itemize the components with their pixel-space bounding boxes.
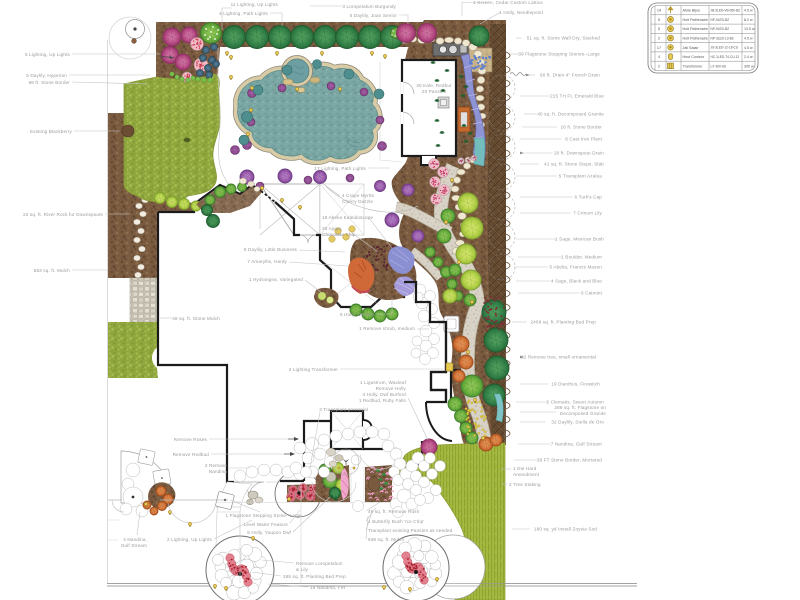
- svg-text:5 Lighting, Up Lights: 5 Lighting, Up Lights: [25, 52, 71, 57]
- svg-text:4.5 w: 4.5 w: [744, 9, 753, 13]
- svg-text:300 w: 300 w: [744, 64, 754, 68]
- svg-text:Remove Holly: Remove Holly: [376, 386, 407, 391]
- svg-text:8 Daylily, Little Business: 8 Daylily, Little Business: [244, 247, 298, 252]
- svg-text:Cherry Dazzle: Cherry Dazzle: [342, 199, 373, 204]
- svg-text:2469 sq. ft. Planting Bed Prep: 2469 sq. ft. Planting Bed Prep: [530, 320, 596, 325]
- svg-text:7 Amaryllis, Hardy: 7 Amaryllis, Hardy: [247, 259, 287, 264]
- svg-text:4 Holly, Dwf Burford: 4 Holly, Dwf Burford: [362, 392, 406, 397]
- svg-text:49 sq. ft. Remove Rush: 49 sq. ft. Remove Rush: [368, 509, 420, 514]
- svg-text:NP-9LED-BZ: NP-9LED-BZ: [711, 18, 730, 22]
- svg-text:4 Crape Myrtle: 4 Crape Myrtle: [342, 193, 375, 198]
- svg-text:4: 4: [658, 55, 660, 59]
- svg-text:1 Die Hard: 1 Die Hard: [513, 466, 537, 471]
- svg-text:16 ft. Stone Border: 16 ft. Stone Border: [561, 125, 603, 130]
- svg-text:1 Boulder, Medium: 1 Boulder, Medium: [561, 255, 602, 260]
- svg-text:LX-300-SS: LX-300-SS: [711, 64, 727, 68]
- svg-text:20 ft. Downspout Drain: 20 ft. Downspout Drain: [554, 151, 604, 156]
- svg-text:51 sq. ft. Stone Wall Dry, Sta: 51 sq. ft. Stone Wall Dry, Stacked: [527, 36, 601, 41]
- svg-text:19 Dianthus, Firewitch: 19 Dianthus, Firewitch: [551, 382, 600, 387]
- svg-text:17: 17: [657, 46, 661, 50]
- svg-text:5 Holly, Yaupon Dwf: 5 Holly, Yaupon Dwf: [247, 530, 291, 535]
- svg-text:5 Transplant Azalea: 5 Transplant Azalea: [559, 174, 602, 179]
- svg-text:7 Nandina, Gulf Stream: 7 Nandina, Gulf Stream: [551, 442, 602, 447]
- svg-text:1 Flagstone Stepping Stone--La: 1 Flagstone Stepping Stone--Large: [226, 513, 303, 518]
- svg-text:2: 2: [658, 64, 660, 68]
- svg-text:1 Ligustrum, Waxleaf: 1 Ligustrum, Waxleaf: [360, 380, 407, 385]
- svg-text:Hout Couleur: Hout Couleur: [683, 55, 705, 59]
- svg-text:JB-3LED-VB-050-BZ: JB-3LED-VB-050-BZ: [711, 9, 741, 13]
- svg-text:Amendment: Amendment: [513, 472, 540, 477]
- svg-text:& Lily: & Lily: [296, 567, 309, 572]
- svg-text:289 sq. ft. Flagstone on: 289 sq. ft. Flagstone on: [554, 405, 606, 410]
- svg-text:1 Sage, Mexican Bush: 1 Sage, Mexican Bush: [555, 237, 604, 242]
- svg-text:14: 14: [657, 9, 661, 13]
- svg-text:Transplant existing Pansies as: Transplant existing Pansies as needed: [368, 528, 453, 533]
- svg-text:22 sq. ft. River Rock for Down: 22 sq. ft. River Rock for Downspouts: [23, 212, 104, 217]
- svg-text:Atole Bijou: Atole Bijou: [683, 9, 701, 13]
- svg-text:8 Cast Iron Plant: 8 Cast Iron Plant: [565, 137, 602, 142]
- svg-text:39 Flagstone Stepping Stones--: 39 Flagstone Stepping Stones--Large: [518, 52, 600, 57]
- svg-text:17 Lighting, Path Lights: 17 Lighting, Path Lights: [314, 166, 366, 171]
- svg-text:32 Daylily, Stella de Oro: 32 Daylily, Stella de Oro: [551, 420, 604, 425]
- svg-text:40 sq. ft. Decomposed Granite: 40 sq. ft. Decomposed Granite: [537, 112, 604, 117]
- svg-text:Existing Blackberry: Existing Blackberry: [30, 129, 72, 134]
- svg-text:NP-9LED-BZ: NP-9LED-BZ: [711, 27, 730, 31]
- svg-text:4 Nandina,: 4 Nandina,: [123, 537, 147, 542]
- svg-text:3 Transplant perennial: 3 Transplant perennial: [319, 407, 368, 412]
- svg-text:8.2 w: 8.2 w: [744, 18, 753, 22]
- svg-text:6 Holly, Carissa: 6 Holly, Carissa: [340, 312, 375, 317]
- svg-text:Holt Pathenaire: Holt Pathenaire: [683, 27, 708, 31]
- svg-text:Holt Pathenaire: Holt Pathenaire: [683, 37, 708, 41]
- svg-text:Remove Redbud: Remove Redbud: [173, 452, 210, 457]
- svg-text:38 FT Stone Border, Mortared: 38 FT Stone Border, Mortared: [537, 458, 602, 463]
- svg-text:4.5 w: 4.5 w: [744, 37, 753, 41]
- svg-text:4 Lighting, Path Lights: 4 Lighting, Path Lights: [219, 11, 268, 16]
- svg-text:938 sq. ft. Mulch: 938 sq. ft. Mulch: [368, 537, 405, 542]
- svg-text:NP-3LED-L3-BZ: NP-3LED-L3-BZ: [711, 36, 734, 40]
- svg-text:5 Daylily, Hyperion: 5 Daylily, Hyperion: [26, 73, 67, 78]
- svg-text:HC-1LED-T4-CU-12: HC-1LED-T4-CU-12: [711, 55, 740, 59]
- svg-text:180 sq. yd Install Zoysia Sod: 180 sq. yd Install Zoysia Sod: [534, 527, 597, 532]
- svg-text:2 Remove: 2 Remove: [205, 463, 227, 468]
- svg-text:6 Catmint: 6 Catmint: [581, 291, 603, 296]
- svg-text:Level Water Feature: Level Water Feature: [244, 522, 289, 527]
- svg-text:5: 5: [658, 18, 660, 22]
- svg-text:Jali Salair: Jali Salair: [683, 46, 700, 50]
- svg-text:5 Abelia, Francis Mason: 5 Abelia, Francis Mason: [550, 265, 603, 270]
- svg-text:11 Lighting, Up Lights: 11 Lighting, Up Lights: [231, 2, 279, 7]
- svg-text:13.5 w: 13.5 w: [744, 27, 755, 31]
- svg-text:2 Lighting, Up Lights: 2 Lighting, Up Lights: [167, 537, 213, 542]
- svg-text:Remove Loropetalum: Remove Loropetalum: [296, 561, 343, 566]
- svg-text:1 Hydrangea, Variegated: 1 Hydrangea, Variegated: [249, 277, 303, 282]
- svg-text:Gulf Stream: Gulf Stream: [121, 543, 147, 548]
- svg-text:48 sq. ft. Stone Mulch: 48 sq. ft. Stone Mulch: [172, 316, 220, 321]
- svg-text:Nandina: Nandina: [209, 469, 227, 474]
- svg-text:1 Holly, Needlepoint: 1 Holly, Needlepoint: [499, 10, 543, 15]
- svg-text:2: 2: [658, 37, 660, 41]
- svg-text:4.5 w: 4.5 w: [744, 46, 753, 50]
- svg-text:18 Nandina, FiH: 18 Nandina, FiH: [310, 585, 345, 590]
- svg-text:Remove Roses: Remove Roses: [174, 437, 208, 442]
- svg-text:41 sq. ft. Stone Steps, Slab: 41 sq. ft. Stone Steps, Slab: [544, 162, 604, 167]
- svg-text:6 Turk's Cap: 6 Turk's Cap: [575, 195, 603, 200]
- svg-text:5: 5: [658, 27, 660, 31]
- svg-text:12 Remove tree, small ornament: 12 Remove tree, small ornamental: [521, 355, 596, 360]
- svg-text:4 Sage, Black and Blue: 4 Sage, Black and Blue: [551, 279, 602, 284]
- svg-text:18 Abelia Kaleidoscope: 18 Abelia Kaleidoscope: [322, 215, 373, 220]
- svg-text:5 Daylily, Joan Senior: 5 Daylily, Joan Senior: [350, 13, 398, 18]
- svg-text:1 Remove shrub, medium: 1 Remove shrub, medium: [359, 326, 415, 331]
- svg-text:215 TH Ft, Emerald Blue: 215 TH Ft, Emerald Blue: [550, 94, 604, 99]
- svg-text:30 Kale, Redbur: 30 Kale, Redbur: [416, 83, 452, 88]
- svg-text:98 ft. Stone Border: 98 ft. Stone Border: [29, 80, 71, 85]
- svg-text:Decomposed Granite: Decomposed Granite: [560, 411, 606, 416]
- svg-text:Holt Pathenaire: Holt Pathenaire: [683, 18, 708, 22]
- svg-text:Chocolate Chip: Chocolate Chip: [322, 232, 356, 237]
- svg-text:36 Ajuga,: 36 Ajuga,: [322, 226, 343, 231]
- svg-text:1 Redbud, Ruby Falls: 1 Redbud, Ruby Falls: [359, 398, 407, 403]
- svg-text:583 sq. ft. Mulch: 583 sq. ft. Mulch: [34, 268, 71, 273]
- svg-text:7 Crinum Lily: 7 Crinum Lily: [573, 211, 602, 216]
- svg-text:365 sq. ft. Planting Bed Prep: 365 sq. ft. Planting Bed Prep: [283, 574, 346, 579]
- svg-text:3 Loropetalum Burgundy: 3 Loropetalum Burgundy: [342, 4, 396, 9]
- svg-text:2.4 w: 2.4 w: [744, 55, 753, 59]
- svg-text:2 Clematis, Sweet Autumn: 2 Clematis, Sweet Autumn: [547, 400, 605, 405]
- svg-text:JS-3LED-12-18-CU: JS-3LED-12-18-CU: [711, 46, 739, 50]
- svg-text:4 Butterfly Bush 'Ice Chip': 4 Butterfly Bush 'Ice Chip': [368, 519, 424, 524]
- svg-text:60 ft. Drain 4" French Drain: 60 ft. Drain 4" French Drain: [540, 73, 600, 78]
- svg-text:2 Lighting Transformer: 2 Lighting Transformer: [289, 367, 339, 372]
- svg-text:Transformer: Transformer: [683, 64, 704, 68]
- svg-text:2 Tree Staking: 2 Tree Staking: [509, 482, 541, 487]
